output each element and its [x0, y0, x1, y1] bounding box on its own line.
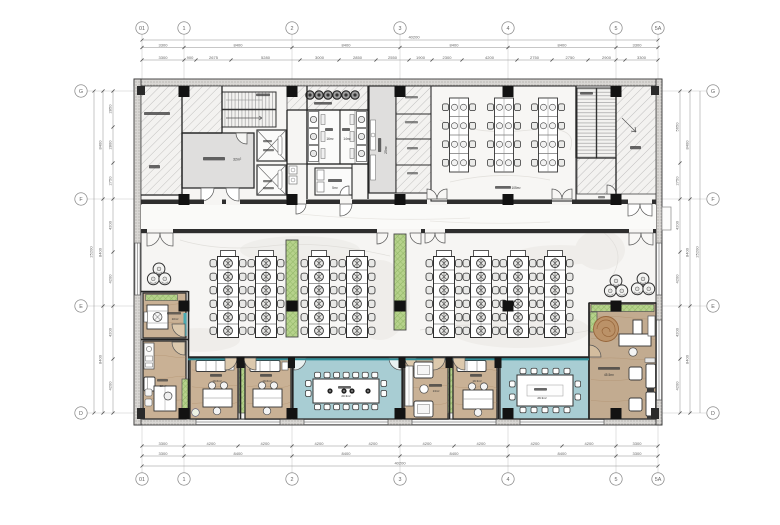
svg-text:E: E — [711, 304, 715, 310]
svg-text:2: 2 — [291, 477, 294, 483]
svg-text:10m²: 10m² — [172, 317, 179, 321]
svg-text:01: 01 — [139, 26, 145, 32]
svg-text:4200: 4200 — [423, 441, 433, 446]
svg-text:8400: 8400 — [234, 451, 244, 456]
svg-text:19.6m²: 19.6m² — [262, 379, 271, 383]
svg-text:1: 1 — [183, 26, 186, 32]
svg-text:4200: 4200 — [261, 441, 271, 446]
svg-text:5: 5 — [615, 26, 618, 32]
svg-text:8400: 8400 — [98, 140, 103, 150]
svg-text:45.5m²: 45.5m² — [604, 373, 614, 377]
svg-text:2300: 2300 — [443, 55, 453, 60]
svg-text:105m²: 105m² — [511, 186, 520, 190]
svg-text:2800: 2800 — [108, 140, 113, 150]
svg-text:4200: 4200 — [485, 55, 495, 60]
svg-text:3300: 3300 — [633, 42, 643, 47]
svg-text:D: D — [711, 411, 715, 417]
svg-text:25m²: 25m² — [384, 145, 388, 154]
svg-text:2750: 2750 — [566, 55, 576, 60]
svg-text:2750: 2750 — [108, 176, 113, 186]
svg-text:3300: 3300 — [633, 451, 643, 456]
svg-text:2850: 2850 — [108, 104, 113, 114]
svg-text:16m²: 16m² — [326, 137, 333, 141]
svg-text:2750: 2750 — [530, 55, 540, 60]
svg-text:32m²: 32m² — [233, 158, 242, 162]
svg-text:4200: 4200 — [207, 441, 217, 446]
svg-text:2750: 2750 — [675, 176, 680, 186]
svg-text:8400: 8400 — [450, 42, 460, 47]
svg-text:5m²: 5m² — [332, 186, 339, 190]
svg-text:4200: 4200 — [675, 381, 680, 391]
svg-text:25200: 25200 — [89, 246, 94, 258]
svg-text:8400: 8400 — [558, 42, 568, 47]
svg-text:8400: 8400 — [685, 247, 690, 257]
svg-text:4200: 4200 — [675, 274, 680, 284]
svg-text:5280: 5280 — [261, 55, 271, 60]
svg-text:E: E — [79, 304, 83, 310]
svg-text:40200: 40200 — [408, 35, 420, 40]
svg-text:3300: 3300 — [633, 441, 643, 446]
svg-text:4200: 4200 — [108, 381, 113, 391]
svg-text:G: G — [79, 89, 83, 95]
svg-text:3300: 3300 — [159, 441, 169, 446]
svg-text:5A: 5A — [655, 26, 662, 32]
svg-text:2550: 2550 — [388, 55, 398, 60]
svg-text:1900: 1900 — [416, 55, 426, 60]
svg-text:3: 3 — [399, 477, 402, 483]
svg-text:4: 4 — [507, 477, 510, 483]
svg-text:2850: 2850 — [353, 55, 363, 60]
svg-text:G: G — [711, 89, 715, 95]
svg-text:14m²: 14m² — [343, 137, 350, 141]
svg-text:2900: 2900 — [602, 55, 612, 60]
svg-text:3300: 3300 — [159, 55, 169, 60]
svg-text:8400: 8400 — [98, 354, 103, 364]
svg-text:8400: 8400 — [98, 247, 103, 257]
svg-text:8400: 8400 — [450, 451, 460, 456]
svg-text:2675: 2675 — [209, 55, 219, 60]
svg-text:5: 5 — [615, 477, 618, 483]
svg-text:4: 4 — [507, 26, 510, 32]
svg-text:01: 01 — [139, 477, 145, 483]
svg-text:D: D — [79, 411, 83, 417]
svg-text:4200: 4200 — [477, 441, 487, 446]
svg-text:13m²: 13m² — [433, 389, 440, 393]
svg-text:19.6m²: 19.6m² — [212, 379, 221, 383]
svg-text:5A: 5A — [655, 477, 662, 483]
svg-text:19.3m²: 19.3m² — [472, 379, 481, 383]
svg-text:29.3m²: 29.3m² — [537, 396, 546, 400]
svg-text:1: 1 — [183, 477, 186, 483]
svg-text:25200: 25200 — [695, 246, 700, 258]
svg-text:4200: 4200 — [585, 441, 595, 446]
svg-text:8400: 8400 — [685, 354, 690, 364]
svg-text:4200: 4200 — [108, 220, 113, 230]
svg-text:3: 3 — [399, 26, 402, 32]
svg-text:3300: 3300 — [159, 42, 169, 47]
svg-text:2: 2 — [291, 26, 294, 32]
svg-text:4200: 4200 — [369, 441, 379, 446]
svg-text:4200: 4200 — [675, 327, 680, 337]
svg-text:4200: 4200 — [531, 441, 541, 446]
svg-text:8400: 8400 — [342, 42, 352, 47]
svg-text:8400: 8400 — [342, 451, 352, 456]
svg-text:3300: 3300 — [637, 55, 647, 60]
svg-text:4200: 4200 — [108, 327, 113, 337]
svg-text:3000: 3000 — [315, 55, 325, 60]
svg-text:4200: 4200 — [315, 441, 325, 446]
svg-text:5650: 5650 — [675, 122, 680, 132]
svg-text:22m²: 22m² — [160, 384, 167, 388]
svg-text:20.3m²: 20.3m² — [341, 394, 350, 398]
svg-text:8400: 8400 — [558, 451, 568, 456]
svg-text:8400: 8400 — [685, 140, 690, 150]
svg-text:4200: 4200 — [108, 274, 113, 284]
svg-text:4200: 4200 — [675, 220, 680, 230]
svg-text:900: 900 — [187, 55, 194, 60]
svg-text:3300: 3300 — [159, 451, 169, 456]
svg-text:8400: 8400 — [234, 42, 244, 47]
svg-text:40200: 40200 — [394, 461, 406, 466]
